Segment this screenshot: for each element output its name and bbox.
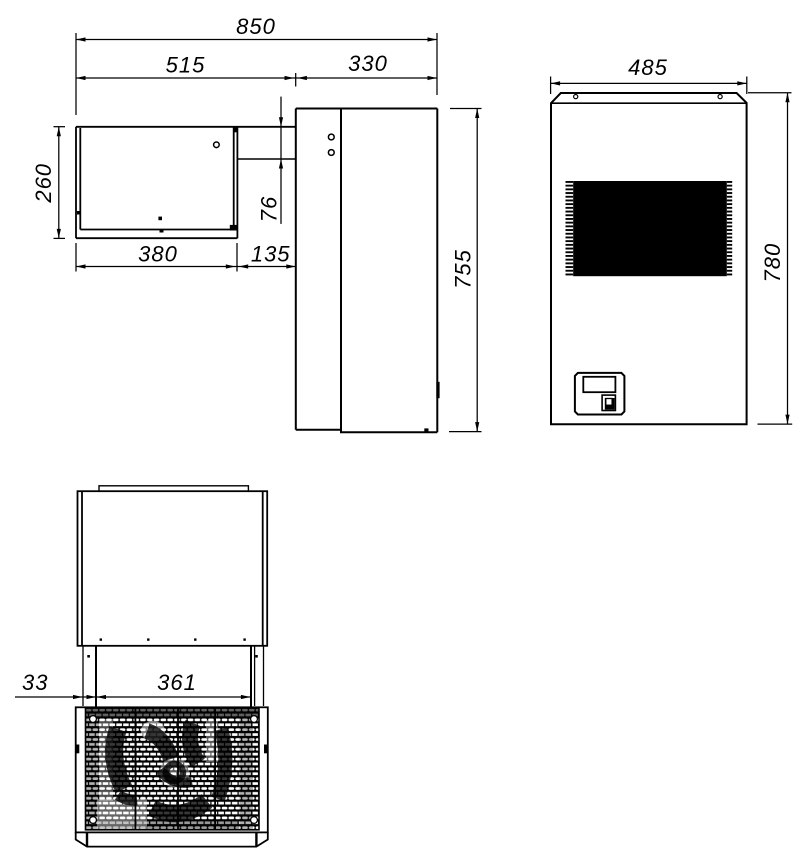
svg-text:850: 850 [236,14,276,39]
svg-text:33: 33 [22,670,48,695]
svg-text:380: 380 [138,242,178,267]
svg-text:361: 361 [157,670,197,695]
svg-text:260: 260 [31,163,56,204]
svg-text:780: 780 [760,243,785,283]
svg-text:485: 485 [628,55,668,80]
svg-text:515: 515 [166,53,206,78]
svg-text:135: 135 [251,242,291,267]
svg-text:76: 76 [257,196,282,222]
svg-text:755: 755 [451,249,476,289]
svg-text:330: 330 [348,51,388,76]
